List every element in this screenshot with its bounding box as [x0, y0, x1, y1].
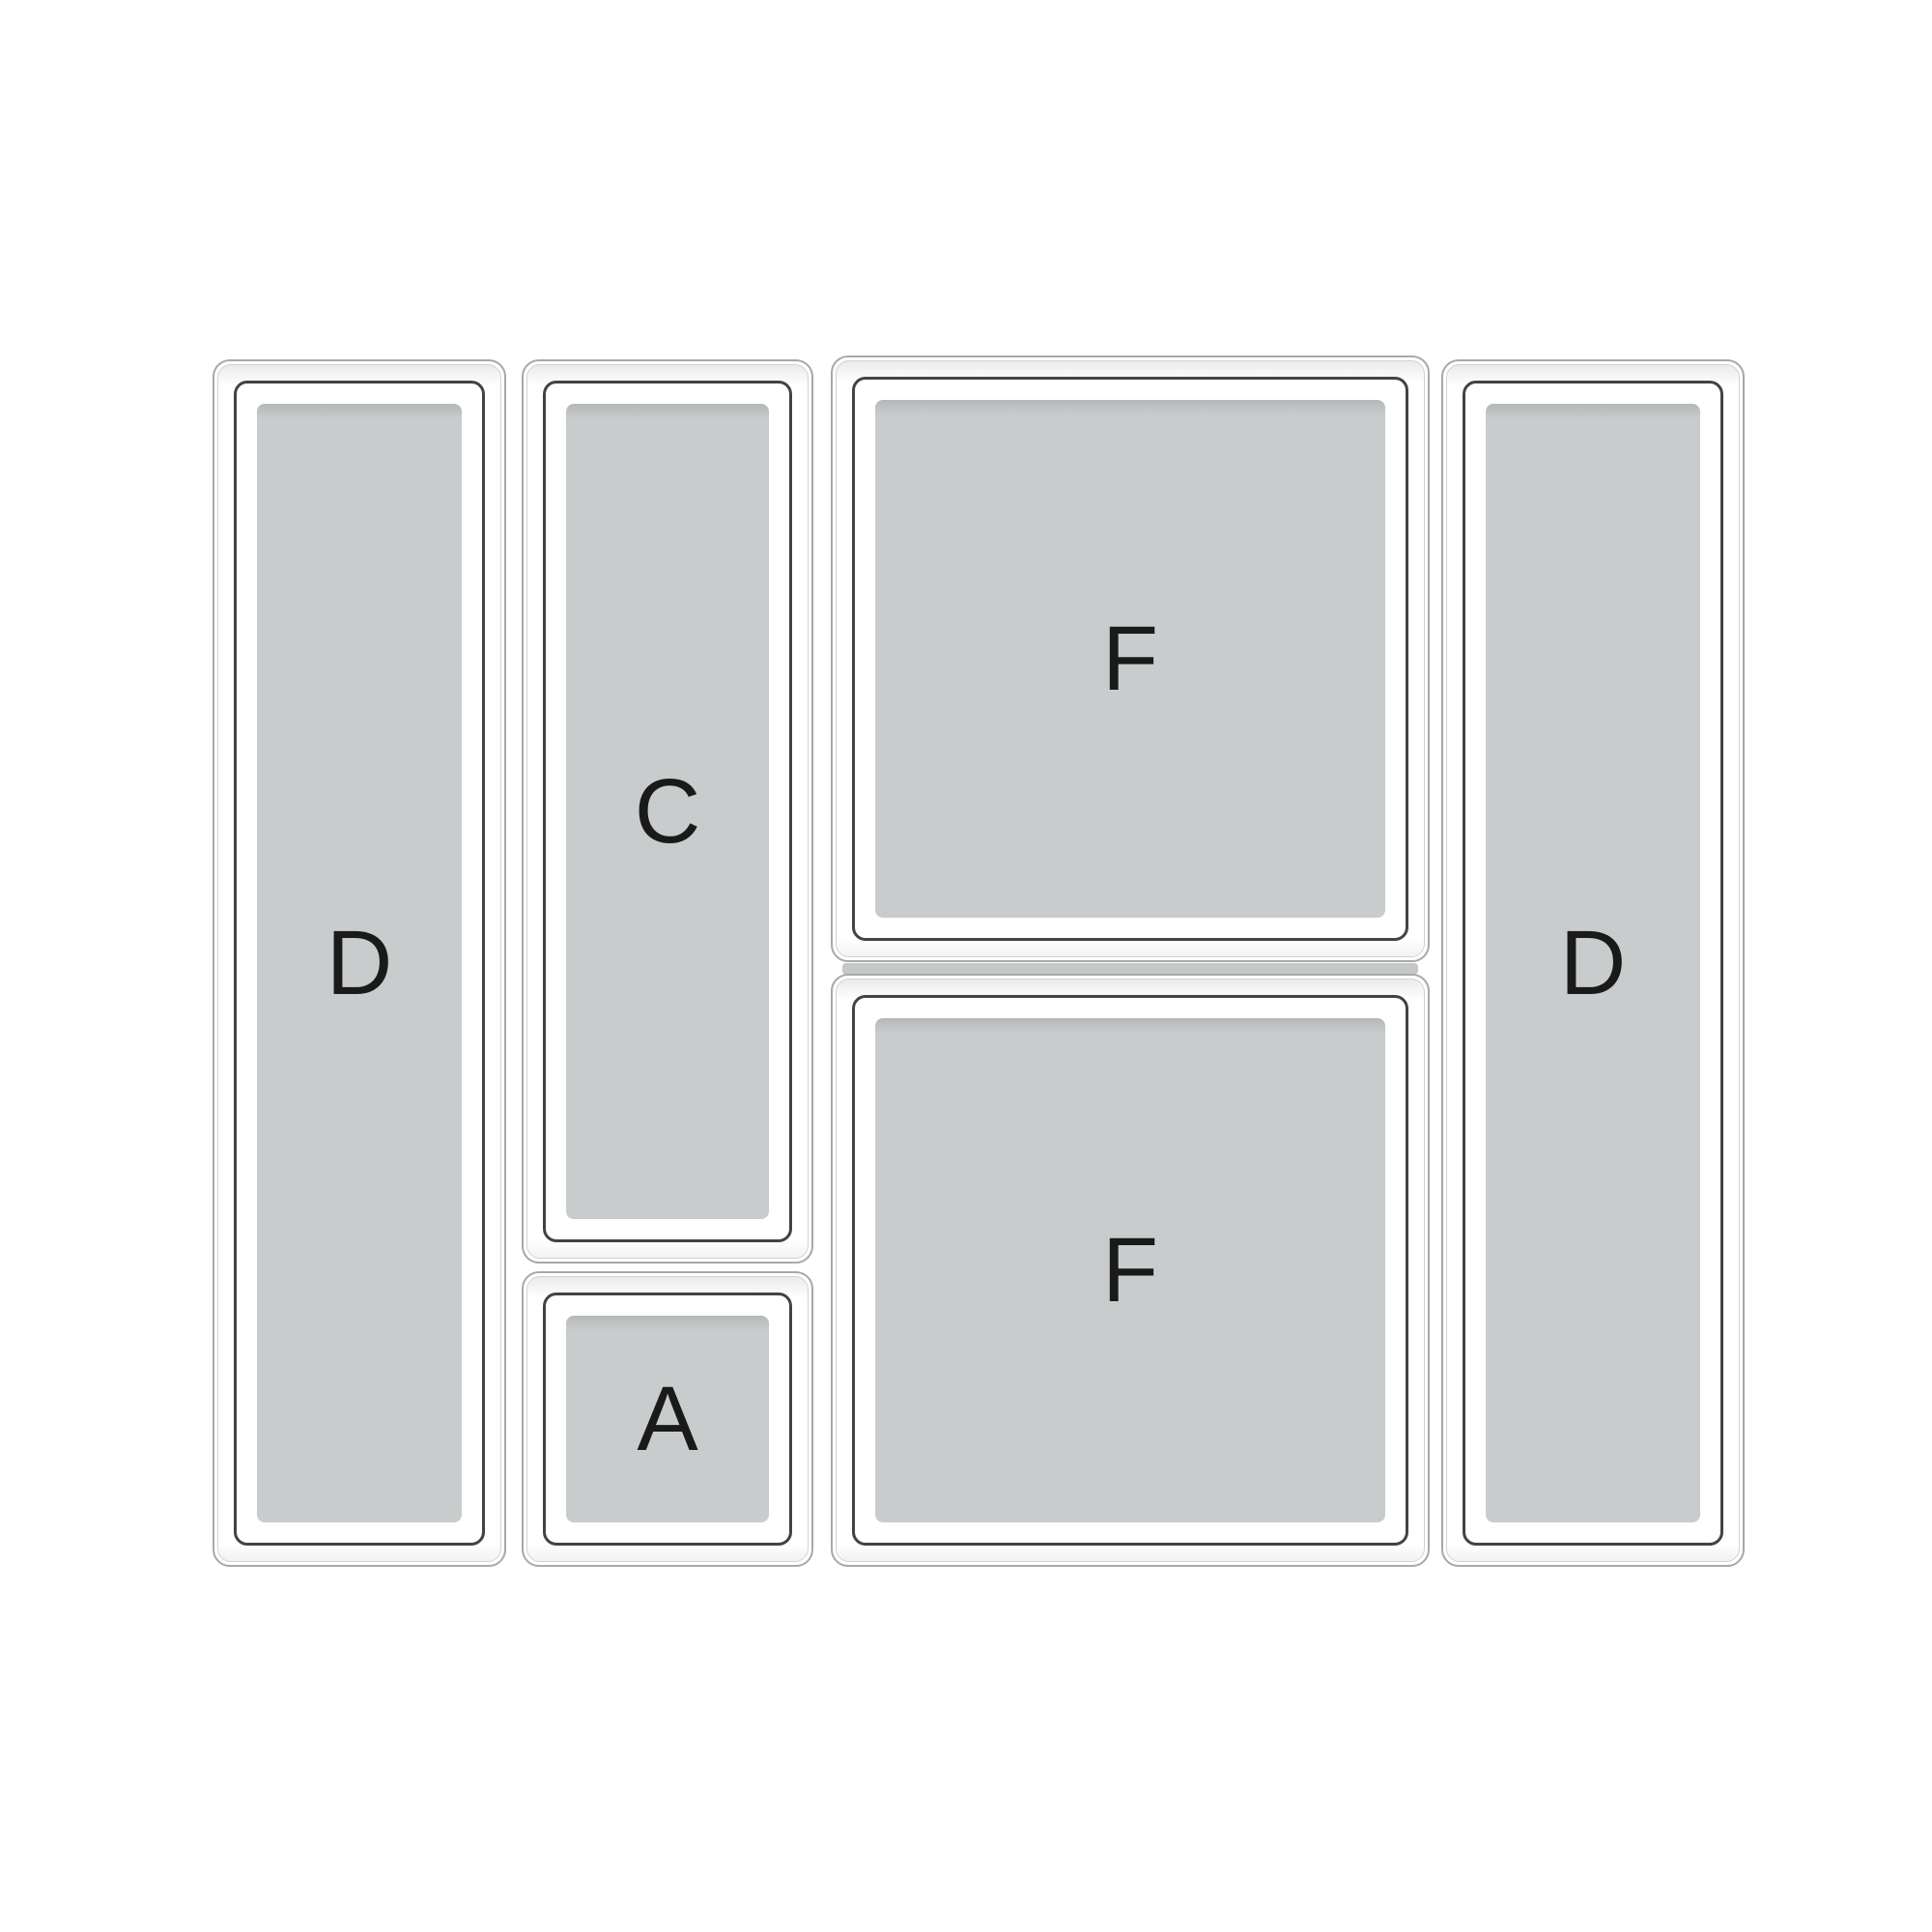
- bin-cavity: A: [566, 1316, 769, 1522]
- bin-cavity: D: [257, 404, 462, 1522]
- bin-cavity: F: [875, 400, 1385, 918]
- bin-label-c: C: [635, 766, 701, 858]
- bin-f-bottom: F: [831, 974, 1430, 1567]
- bin-d-right: D: [1441, 359, 1745, 1567]
- bin-c: C: [522, 359, 813, 1264]
- bin-label-d-left: D: [327, 918, 393, 1009]
- drawer-organizer-diagram: D C A F F D: [0, 0, 1932, 1932]
- bin-d-left: D: [213, 359, 506, 1567]
- bin-cavity: C: [566, 404, 769, 1219]
- bin-cavity: D: [1486, 404, 1700, 1522]
- bin-f-top: F: [831, 355, 1430, 962]
- bin-label-a: A: [637, 1374, 697, 1465]
- bin-a: A: [522, 1271, 813, 1567]
- bin-label-f-top: F: [1102, 613, 1158, 705]
- bin-cavity: F: [875, 1018, 1385, 1522]
- bin-label-f-bottom: F: [1102, 1225, 1158, 1317]
- bin-label-d-right: D: [1560, 918, 1627, 1009]
